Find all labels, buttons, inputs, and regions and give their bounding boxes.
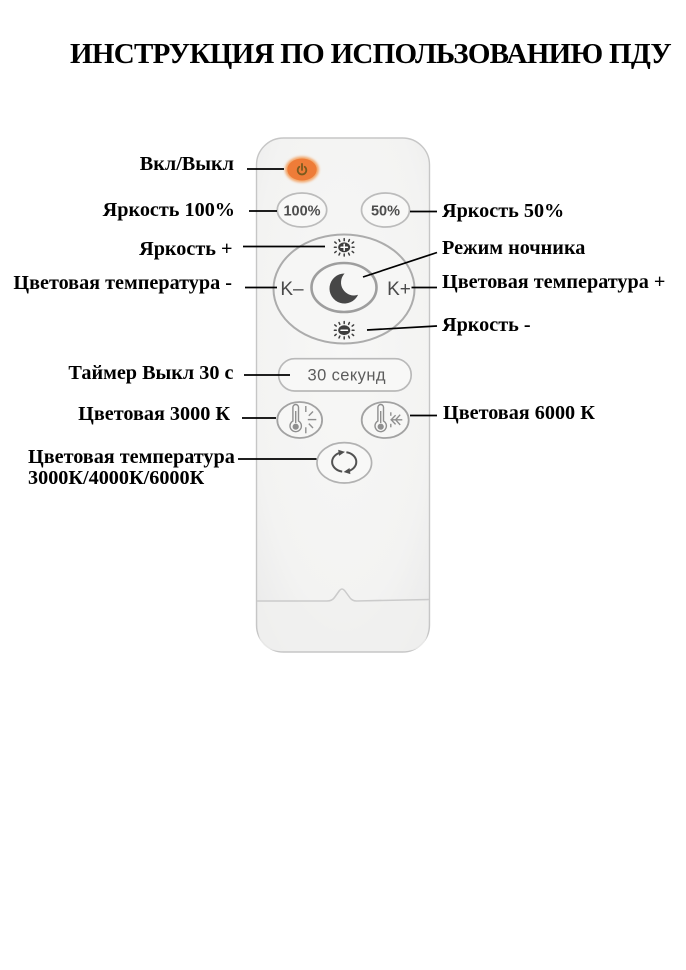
svg-text:50%: 50% xyxy=(371,204,400,220)
svg-text:100%: 100% xyxy=(283,204,320,220)
svg-text:30 секунд: 30 секунд xyxy=(308,367,386,385)
svg-text:K–: K– xyxy=(280,279,304,300)
svg-text:K+: K+ xyxy=(387,279,411,300)
